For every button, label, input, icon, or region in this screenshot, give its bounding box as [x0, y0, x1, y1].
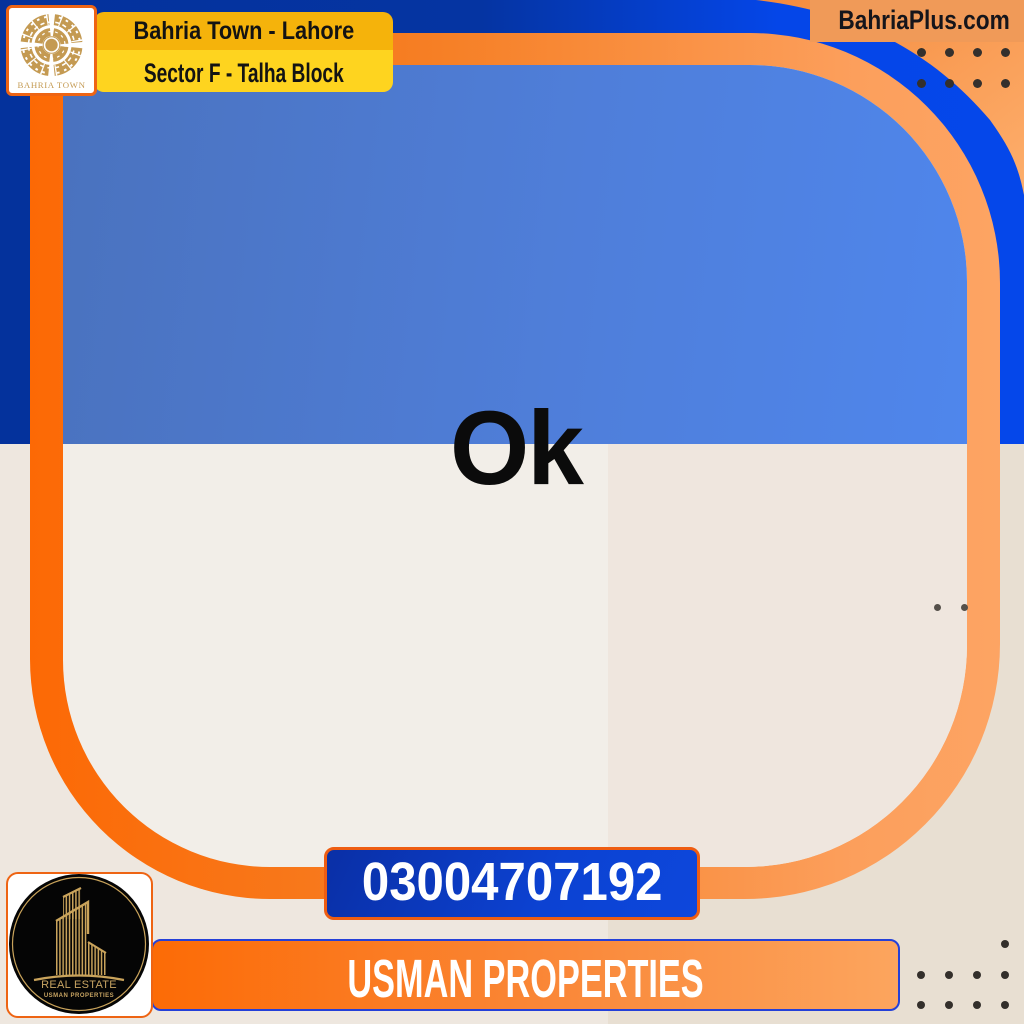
svg-text:REAL ESTATE: REAL ESTATE: [41, 979, 117, 991]
svg-text:BAHRIA TOWN: BAHRIA TOWN: [17, 80, 85, 90]
svg-text:USMAN PROPERTIES: USMAN PROPERTIES: [44, 993, 114, 999]
